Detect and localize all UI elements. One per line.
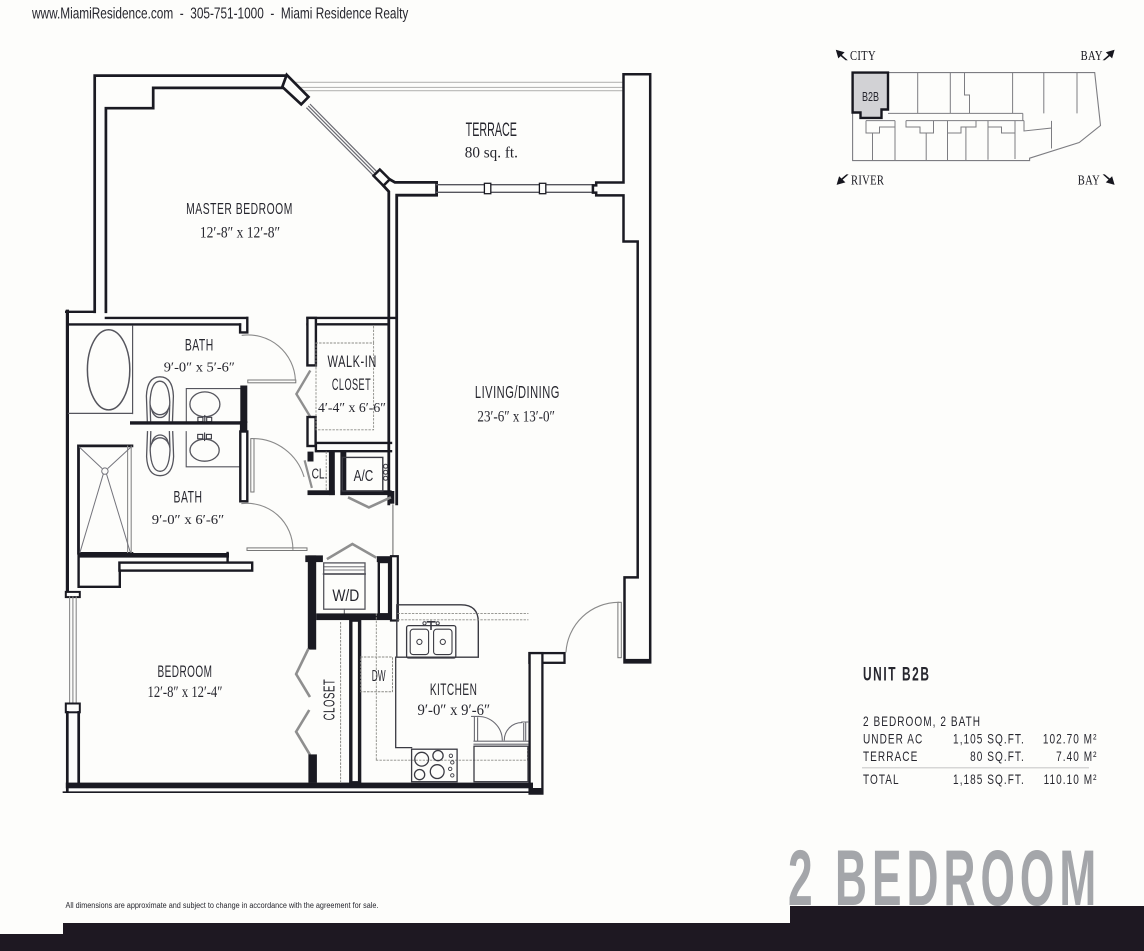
svg-text:DW: DW: [372, 667, 386, 684]
svg-text:23′-6″ x 13′-0″: 23′-6″ x 13′-0″: [477, 408, 555, 425]
svg-text:LIVING/DINING: LIVING/DINING: [475, 383, 560, 402]
svg-text:12′-8″ x 12′-4″: 12′-8″ x 12′-4″: [148, 684, 223, 702]
svg-text:9′-0″ x 9′-6″: 9′-0″ x 9′-6″: [417, 703, 490, 719]
svg-text:UNIT B2B: UNIT B2B: [863, 664, 931, 686]
svg-text:www.MiamiResidence.com - 305: www.MiamiResidence.com - 305-751-1000 - …: [31, 4, 408, 22]
svg-text:110.10 M²: 110.10 M²: [1044, 771, 1098, 787]
svg-text:KITCHEN: KITCHEN: [430, 679, 478, 698]
svg-text:4′-4″ x 6′-6″: 4′-4″ x 6′-6″: [318, 401, 386, 416]
svg-text:MASTER BEDROOM: MASTER BEDROOM: [186, 200, 293, 218]
svg-text:2 BEDROOM, 2 BATH: 2 BEDROOM, 2 BATH: [863, 714, 981, 730]
svg-text:1,185 SQ.FT.: 1,185 SQ.FT.: [953, 771, 1025, 787]
svg-text:9′-0″ x 5′-6″: 9′-0″ x 5′-6″: [164, 359, 235, 375]
svg-text:RIVER: RIVER: [851, 172, 884, 187]
svg-text:A/C: A/C: [354, 466, 374, 484]
svg-text:7.40 M²: 7.40 M²: [1056, 749, 1097, 765]
svg-text:TOTAL: TOTAL: [863, 771, 900, 787]
svg-text:TERRACE: TERRACE: [863, 749, 918, 765]
svg-text:All dimensions are approximate: All dimensions are approximate and subje…: [66, 901, 379, 911]
svg-text:B2B: B2B: [862, 91, 879, 105]
svg-text:TERRACE: TERRACE: [466, 120, 517, 141]
svg-text:BEDROOM: BEDROOM: [158, 661, 213, 680]
svg-text:BATH: BATH: [185, 336, 214, 354]
svg-text:12′-8″ x 12′-8″: 12′-8″ x 12′-8″: [200, 225, 280, 242]
svg-text:102.70 M²: 102.70 M²: [1043, 731, 1098, 747]
svg-text:CL.: CL.: [312, 464, 328, 482]
svg-text:BAY: BAY: [1081, 48, 1103, 63]
svg-text:BAY: BAY: [1078, 172, 1100, 187]
svg-text:80 sq. ft.: 80 sq. ft.: [465, 144, 518, 161]
svg-text:CITY: CITY: [850, 48, 876, 63]
svg-text:CLOSET: CLOSET: [320, 679, 338, 721]
svg-text:UNDER AC: UNDER AC: [863, 731, 923, 747]
svg-text:9′-0″ x 6′-6″: 9′-0″ x 6′-6″: [152, 512, 225, 528]
svg-text:1,105 SQ.FT.: 1,105 SQ.FT.: [953, 731, 1025, 747]
svg-text:80 SQ.FT.: 80 SQ.FT.: [970, 749, 1025, 765]
svg-text:WALK-IN: WALK-IN: [328, 352, 377, 371]
svg-text:CLOSET: CLOSET: [332, 375, 371, 393]
svg-text:W/D: W/D: [332, 587, 359, 605]
svg-text:BATH: BATH: [174, 488, 203, 506]
